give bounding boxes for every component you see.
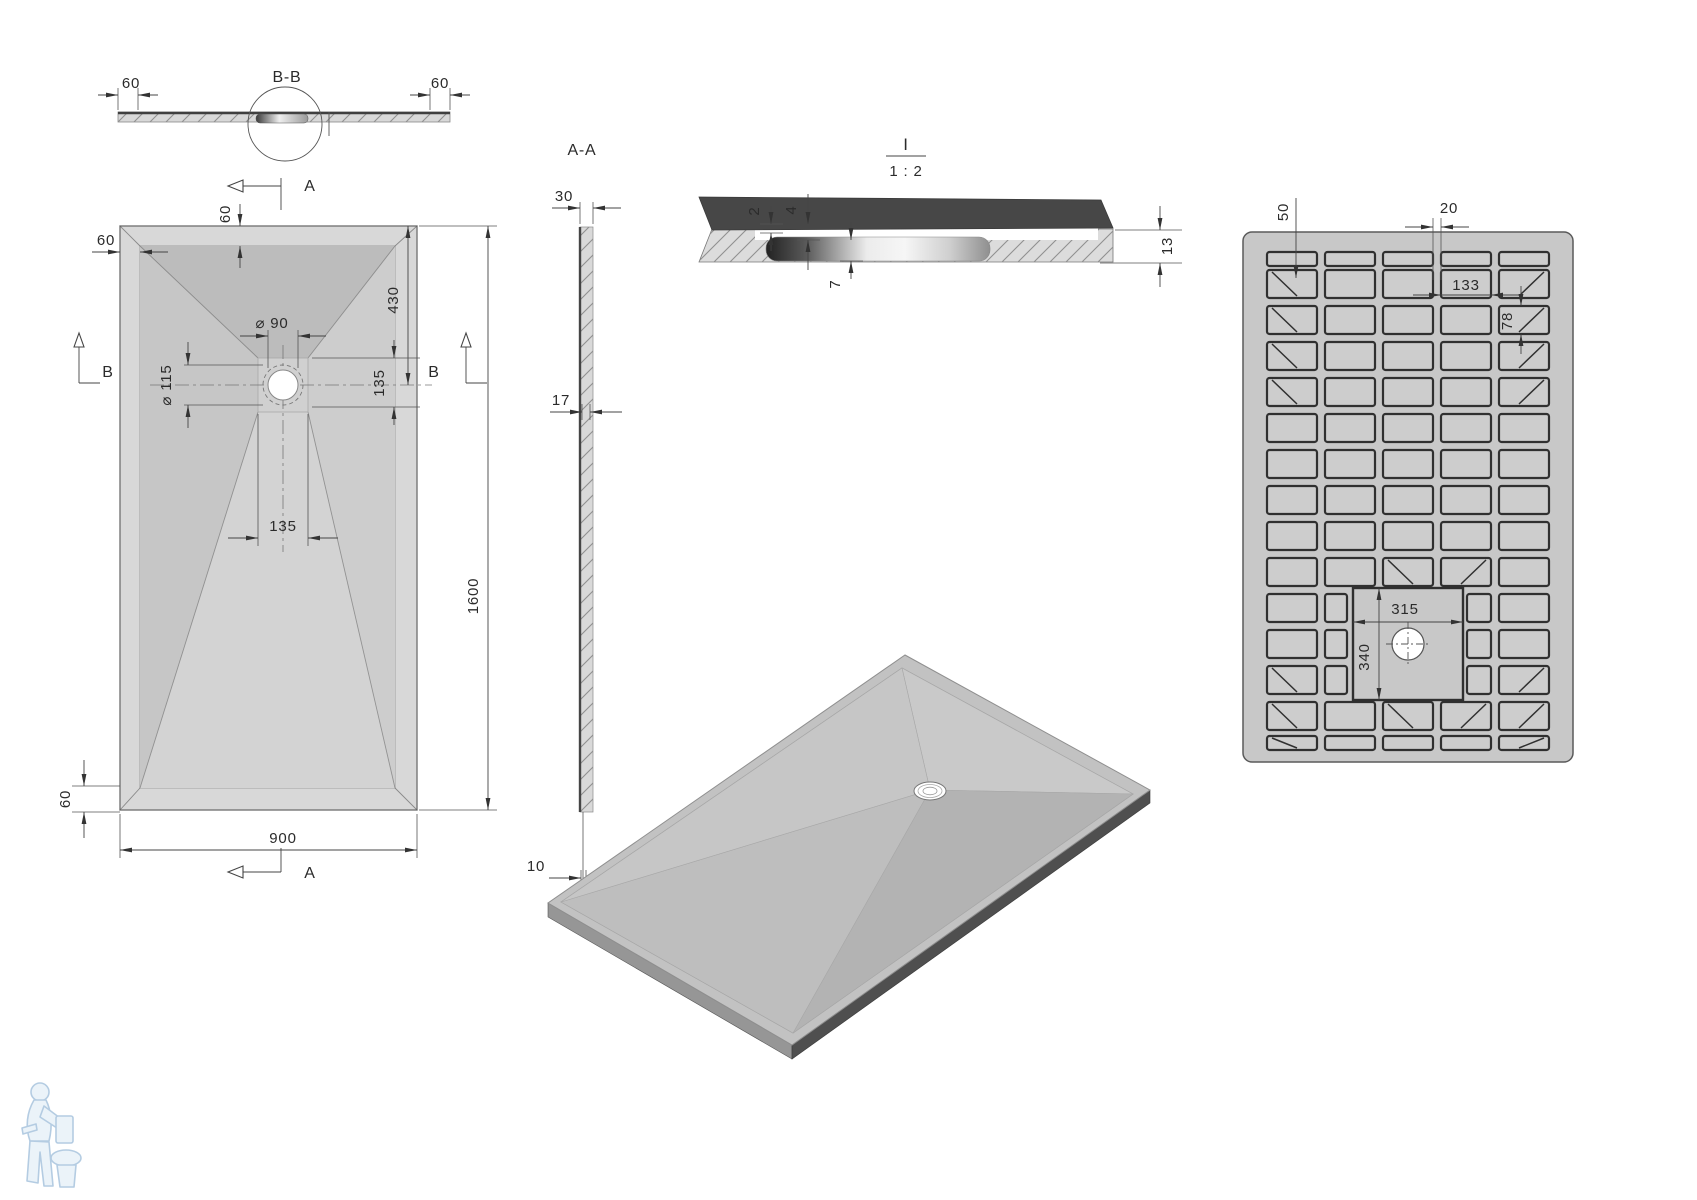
rib-cell <box>1325 378 1375 406</box>
plan-dim-length: 1600 <box>465 578 482 615</box>
rib-cell <box>1467 594 1491 622</box>
rib-cell <box>1325 522 1375 550</box>
bb-dim-left: 60 <box>122 75 140 92</box>
plan-dim-rim-left: 60 <box>97 232 115 249</box>
rib-cell <box>1441 378 1491 406</box>
section-arrow-b-right: B <box>428 333 487 383</box>
plan-view: 60 60 430 135 ⌀ 90 ⌀ 115 135 60 <box>57 178 497 882</box>
rib-cell <box>1499 252 1549 266</box>
rib-cell <box>1499 736 1549 750</box>
rib-cell <box>1499 414 1549 442</box>
rib-cell <box>1467 666 1491 694</box>
watermark-plumber-icon <box>22 1083 81 1187</box>
section-arrow-b-left: B <box>74 333 114 383</box>
rib-cell <box>1267 736 1317 750</box>
rib-cell <box>1441 486 1491 514</box>
rib-cell <box>1325 486 1375 514</box>
detail-drain-flange <box>766 237 990 261</box>
section-arrow-a-bottom: A <box>228 848 316 882</box>
rib-cell <box>1325 736 1375 750</box>
bb-drain-recess <box>256 114 308 123</box>
rib-cell <box>1267 486 1317 514</box>
plan-dim-rim-top: 60 <box>217 205 234 223</box>
detail-scale: 1 : 2 <box>889 163 922 180</box>
drawing-sheet: B-B 60 60 60 <box>0 0 1697 1200</box>
rib-cell <box>1383 522 1433 550</box>
rib-cell <box>1499 450 1549 478</box>
rib-cell <box>1467 630 1491 658</box>
section-a-label-top: A <box>304 178 315 195</box>
bottom-dim-cell-width: 133 <box>1452 277 1479 294</box>
bottom-dim-center-width: 315 <box>1391 601 1418 618</box>
rib-cell <box>1267 252 1317 266</box>
rib-cell <box>1325 306 1375 334</box>
aa-dim-mid: 17 <box>552 392 570 409</box>
rib-cell <box>1267 450 1317 478</box>
rib-cell <box>1325 270 1375 298</box>
rib-cell <box>1441 414 1491 442</box>
plan-dim-recess-width: 135 <box>269 518 296 535</box>
rib-cell <box>1441 252 1491 266</box>
detail-dim-thickness: 13 <box>1159 237 1176 255</box>
bottom-dim-rib-gap: 20 <box>1440 200 1458 217</box>
rib-cell <box>1325 450 1375 478</box>
shower-tray-drawing: B-B 60 60 60 <box>0 0 1697 1200</box>
rib-cell <box>1383 270 1433 298</box>
plan-dim-width: 900 <box>269 830 296 847</box>
rib-cell <box>1267 558 1317 586</box>
bottom-dim-rib-offset: 50 <box>1275 203 1292 221</box>
rib-cell <box>1499 558 1549 586</box>
rib-cell <box>1441 306 1491 334</box>
rib-cell <box>1441 522 1491 550</box>
rib-cell <box>1383 736 1433 750</box>
rib-cell <box>1441 342 1491 370</box>
section-b-label-left: B <box>102 364 113 381</box>
rib-cell <box>1441 736 1491 750</box>
plan-drain-hole <box>268 370 298 400</box>
aa-dim-bottom: 10 <box>527 858 545 875</box>
detail-dim-lip: 2 <box>746 206 763 215</box>
rib-cell <box>1383 342 1433 370</box>
rib-cell <box>1325 414 1375 442</box>
rib-cell <box>1325 342 1375 370</box>
section-a-label-bottom: A <box>304 865 315 882</box>
rib-cell <box>1267 630 1317 658</box>
section-aa-title: A-A <box>567 142 596 159</box>
section-bb-title: B-B <box>272 69 301 86</box>
section-arrow-a-top: A <box>228 178 316 210</box>
rib-cell <box>1499 630 1549 658</box>
rib-cell <box>1267 522 1317 550</box>
rib-cell <box>1267 414 1317 442</box>
section-b-label-right: B <box>428 364 439 381</box>
bottom-dim-cell-height: 78 <box>1499 312 1516 330</box>
detail-dim-step: 4 <box>783 205 800 214</box>
rib-cell <box>1383 252 1433 266</box>
rib-cell <box>1383 306 1433 334</box>
rib-cell <box>1325 666 1347 694</box>
rib-cell <box>1383 486 1433 514</box>
rib-cell <box>1441 450 1491 478</box>
rib-cell <box>1383 450 1433 478</box>
bb-dim-right: 60 <box>431 75 449 92</box>
aa-dim-top: 30 <box>555 188 573 205</box>
bb-detail-circle <box>248 87 322 161</box>
rib-cell <box>1499 522 1549 550</box>
aa-wall-hatch <box>580 227 593 812</box>
plan-dim-drain-from-top: 430 <box>385 286 402 313</box>
rib-cell <box>1325 252 1375 266</box>
rib-cell <box>1325 558 1375 586</box>
detail-i-view: I 1 : 2 2 4 7 13 <box>699 135 1182 289</box>
plan-dim-rim-bottom: 60 <box>57 790 74 808</box>
plan-dim-recess-dia: ⌀ 115 <box>158 364 175 405</box>
iso-facet-top <box>902 668 1133 794</box>
rib-cell <box>1383 414 1433 442</box>
rib-cell <box>1325 702 1375 730</box>
rib-cell <box>1325 594 1347 622</box>
plan-dim-recess-below: 135 <box>371 369 388 396</box>
rib-cell <box>1383 378 1433 406</box>
bottom-view: 315 340 50 20 133 78 <box>1243 198 1573 762</box>
rib-cell <box>1499 486 1549 514</box>
rib-cell <box>1325 630 1347 658</box>
detail-title: I <box>903 135 909 154</box>
section-aa-view: A-A 30 17 10 <box>527 142 622 890</box>
isometric-view <box>548 655 1150 1059</box>
rib-cell <box>1267 594 1317 622</box>
section-bb-view: B-B 60 60 <box>98 69 470 161</box>
rib-cell <box>1499 594 1549 622</box>
bottom-dim-center-height: 340 <box>1356 643 1373 670</box>
plan-dim-drain-dia: ⌀ 90 <box>255 315 288 332</box>
detail-dim-depth: 7 <box>827 279 844 288</box>
